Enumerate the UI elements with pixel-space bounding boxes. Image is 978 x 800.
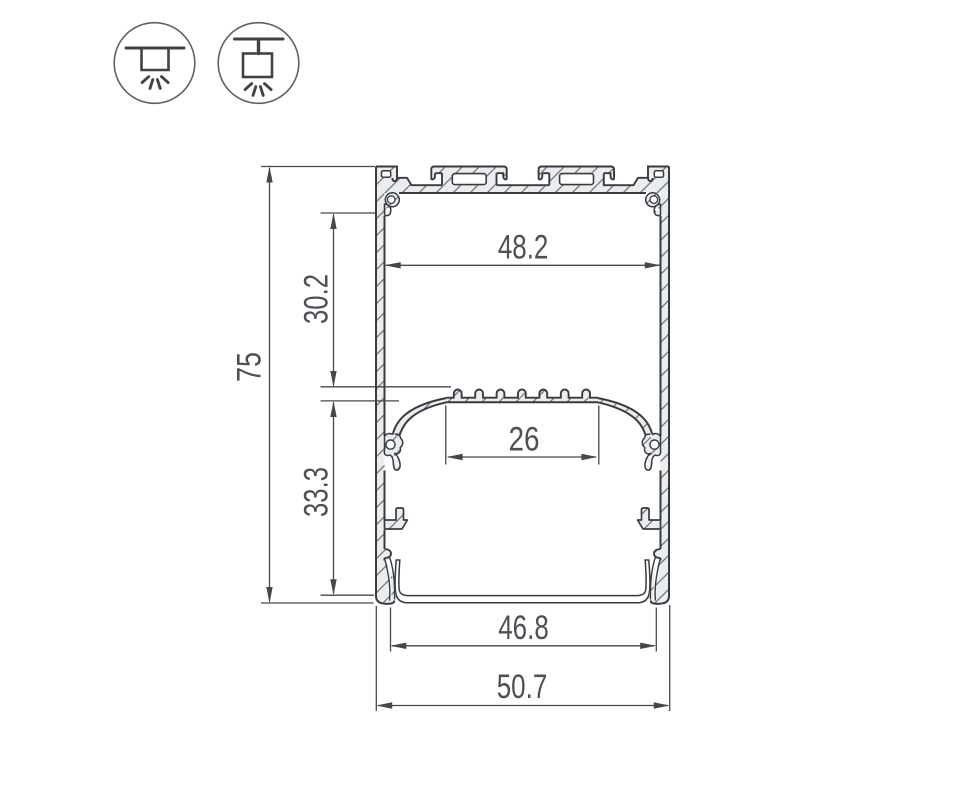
svg-text:48.2: 48.2 xyxy=(498,229,549,267)
svg-text:26: 26 xyxy=(509,421,540,459)
svg-text:50.7: 50.7 xyxy=(497,668,548,706)
svg-text:46.8: 46.8 xyxy=(498,609,549,647)
svg-text:30.2: 30.2 xyxy=(298,274,336,324)
svg-text:33.3: 33.3 xyxy=(298,467,336,517)
svg-text:75: 75 xyxy=(231,352,269,382)
